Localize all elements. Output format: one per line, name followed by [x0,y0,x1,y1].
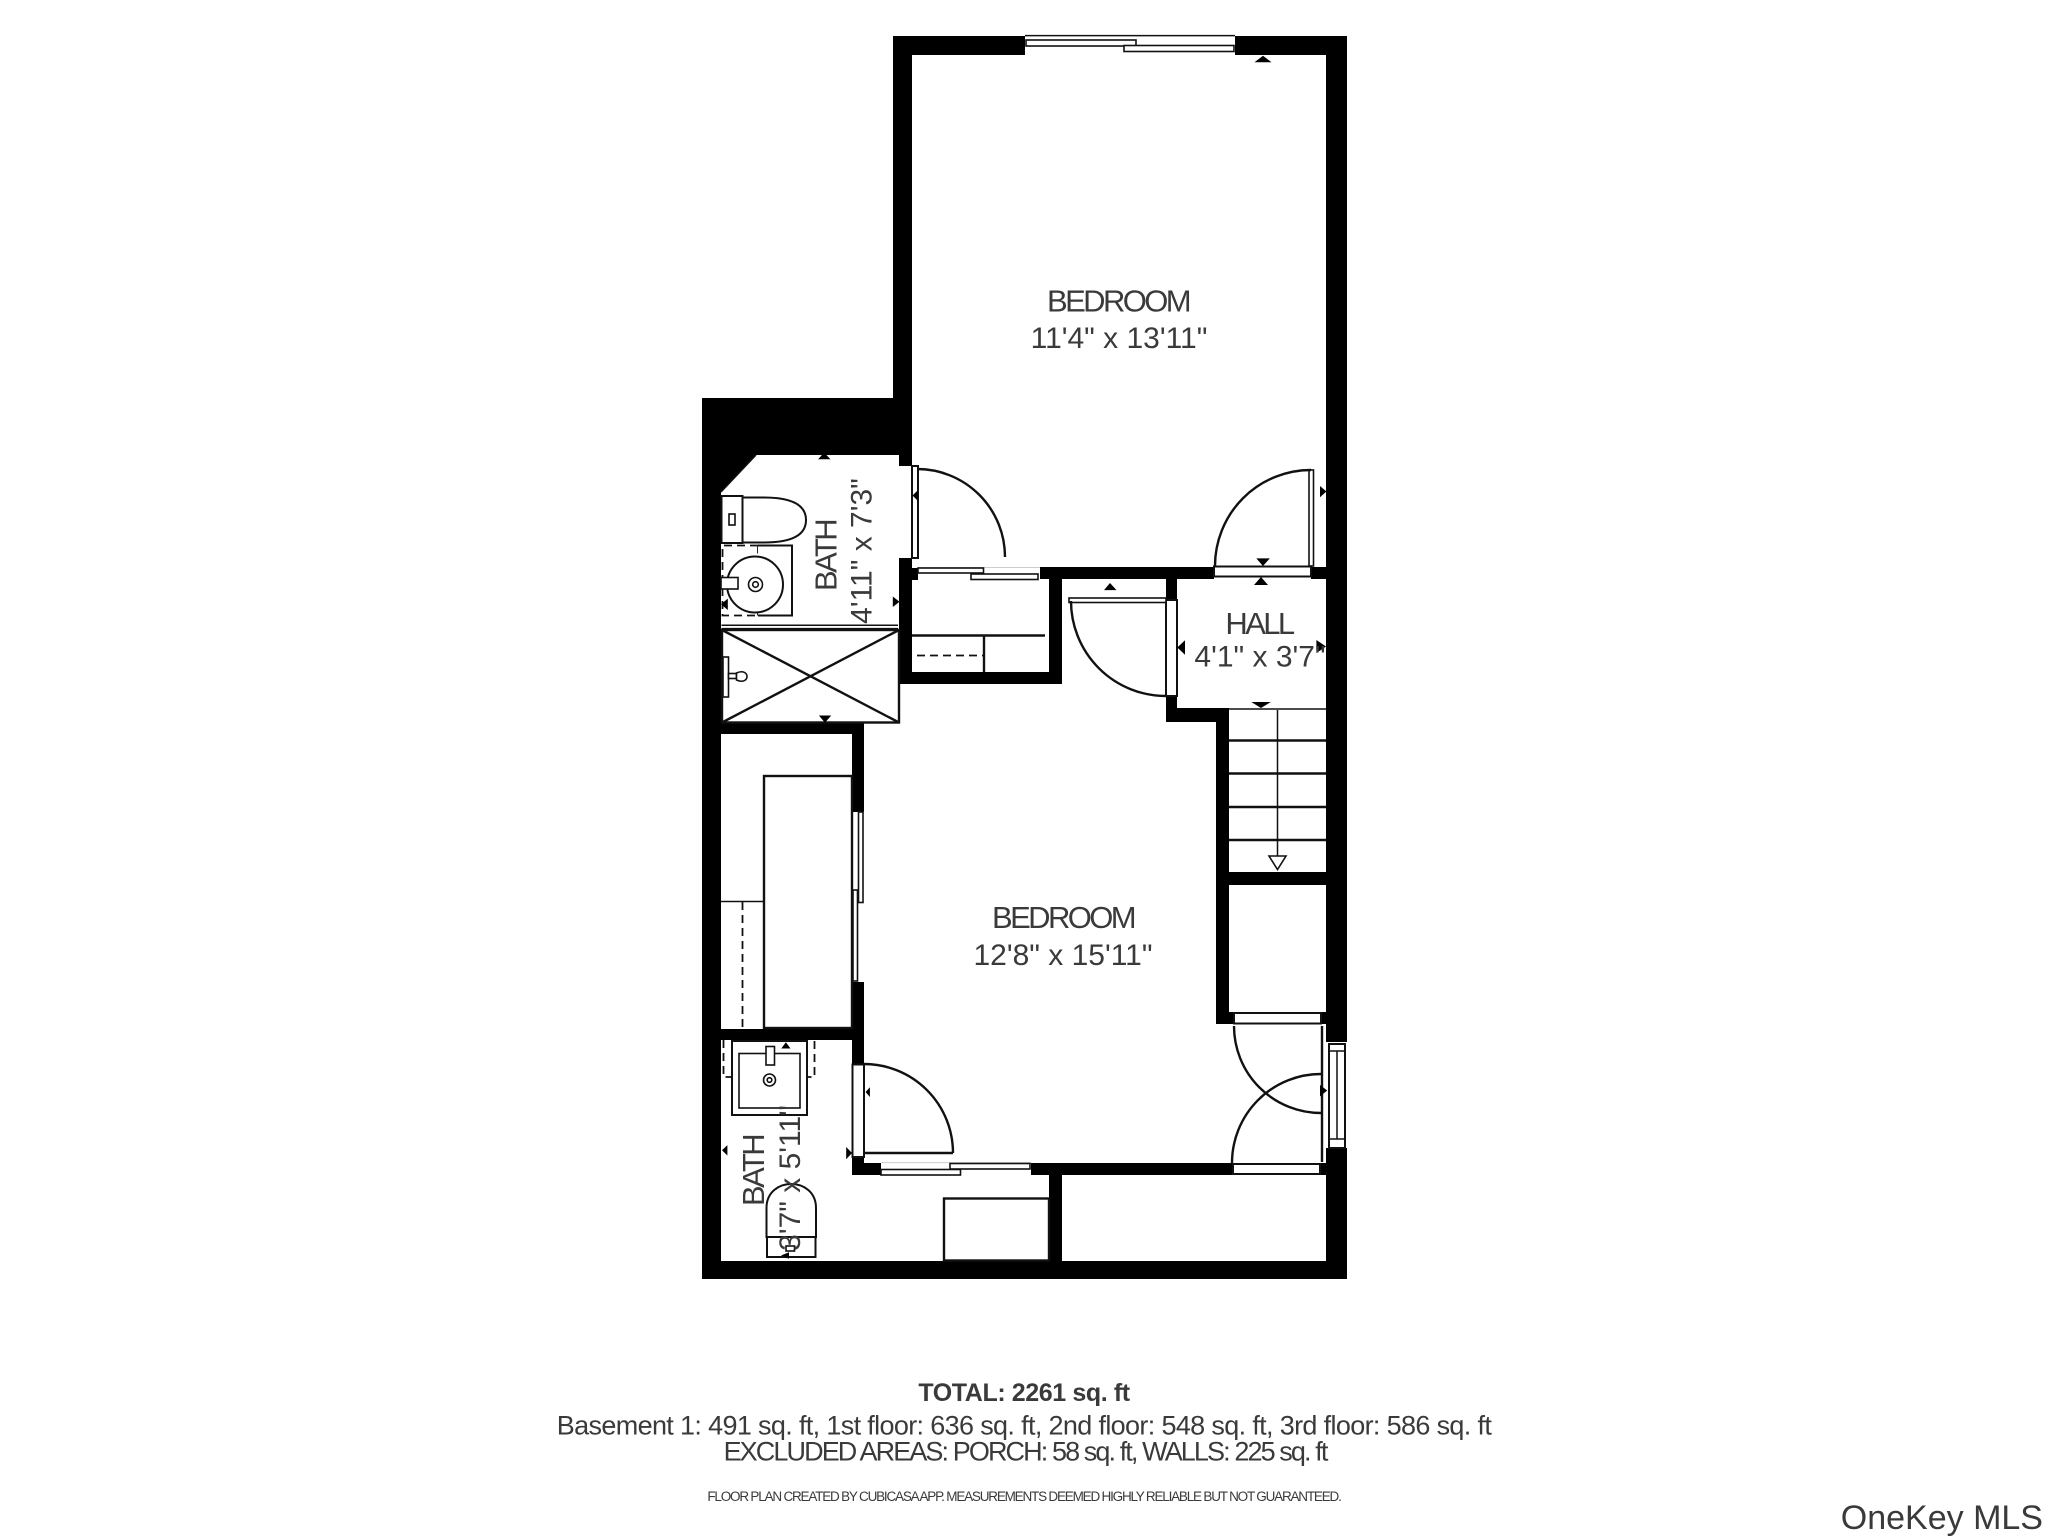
svg-text:FLOOR PLAN CREATED BY CUBICASA: FLOOR PLAN CREATED BY CUBICASA APP. MEAS… [707,1489,1341,1504]
svg-text:11'4" x 13'11": 11'4" x 13'11" [1031,322,1208,355]
svg-text:4'11" x 7'3": 4'11" x 7'3" [846,478,879,624]
svg-text:OneKey MLS: OneKey MLS [1841,1499,2043,1536]
svg-text:HALL: HALL [1225,606,1295,641]
svg-text:BEDROOM: BEDROOM [992,900,1135,935]
svg-text:BATH: BATH [809,521,844,591]
svg-text:BATH: BATH [736,1136,771,1206]
svg-text:4'1" x 3'7": 4'1" x 3'7" [1194,641,1325,674]
svg-text:12'8" x 15'11": 12'8" x 15'11" [974,939,1153,972]
svg-text:3'7" x 5'11": 3'7" x 5'11" [774,1105,807,1251]
svg-text:BEDROOM: BEDROOM [1047,284,1190,319]
svg-text:EXCLUDED AREAS: PORCH: 58 sq.: EXCLUDED AREAS: PORCH: 58 sq. ft, WALLS:… [724,1437,1329,1467]
svg-text:TOTAL: 2261 sq. ft: TOTAL: 2261 sq. ft [918,1379,1130,1407]
